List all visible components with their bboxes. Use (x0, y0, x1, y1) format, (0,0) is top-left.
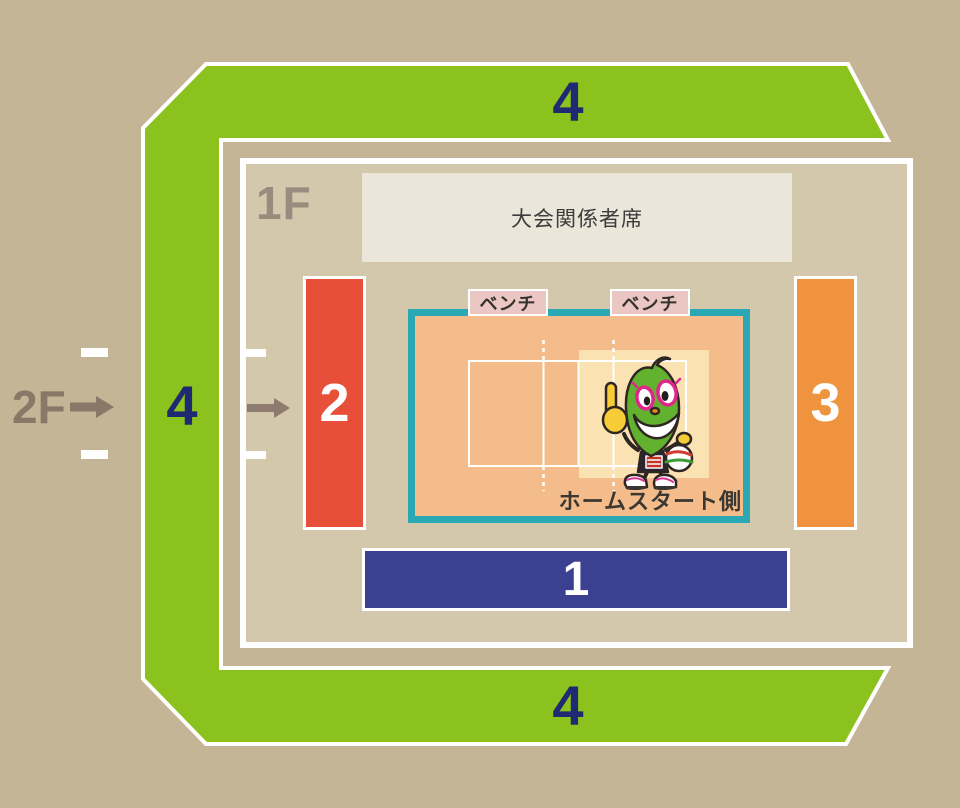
section-3-seats[interactable]: 3 (794, 276, 857, 530)
second-floor-arrow-icon (68, 394, 114, 420)
section-2-seats[interactable]: 2 (303, 276, 366, 530)
second-floor-entrance-label: 2F (12, 384, 114, 430)
first-floor-entrance-arrow-icon (245, 396, 291, 420)
section-4-label-left: 4 (143, 368, 221, 444)
second-floor-label: 2F (12, 384, 66, 430)
entrance-tick (240, 451, 266, 459)
entrance-tick (81, 450, 108, 459)
bench-left-label: ベンチ (480, 290, 537, 316)
bench-right-label: ベンチ (622, 290, 679, 316)
bench-right: ベンチ (610, 289, 690, 316)
section-1-label: 1 (563, 552, 590, 607)
officials-seat-label: 大会関係者席 (511, 203, 643, 233)
section-1-seats[interactable]: 1 (362, 548, 790, 611)
arena-seating-map: 4 4 4 1F 大会関係者席 2 3 1 (0, 0, 960, 808)
entrance-tick (240, 349, 266, 357)
volleyball-mascot-icon (594, 356, 704, 492)
section-4-label-bottom: 4 (538, 668, 598, 744)
section-4-label-top: 4 (538, 64, 598, 140)
first-floor-label: 1F (256, 180, 312, 226)
section-3-label: 3 (810, 372, 840, 434)
section-2-label: 2 (319, 372, 349, 434)
entrance-tick (81, 348, 108, 357)
bench-left: ベンチ (468, 289, 548, 316)
officials-seat-block: 大会関係者席 (362, 173, 792, 262)
home-start-label: ホームスタート側 (552, 484, 742, 516)
